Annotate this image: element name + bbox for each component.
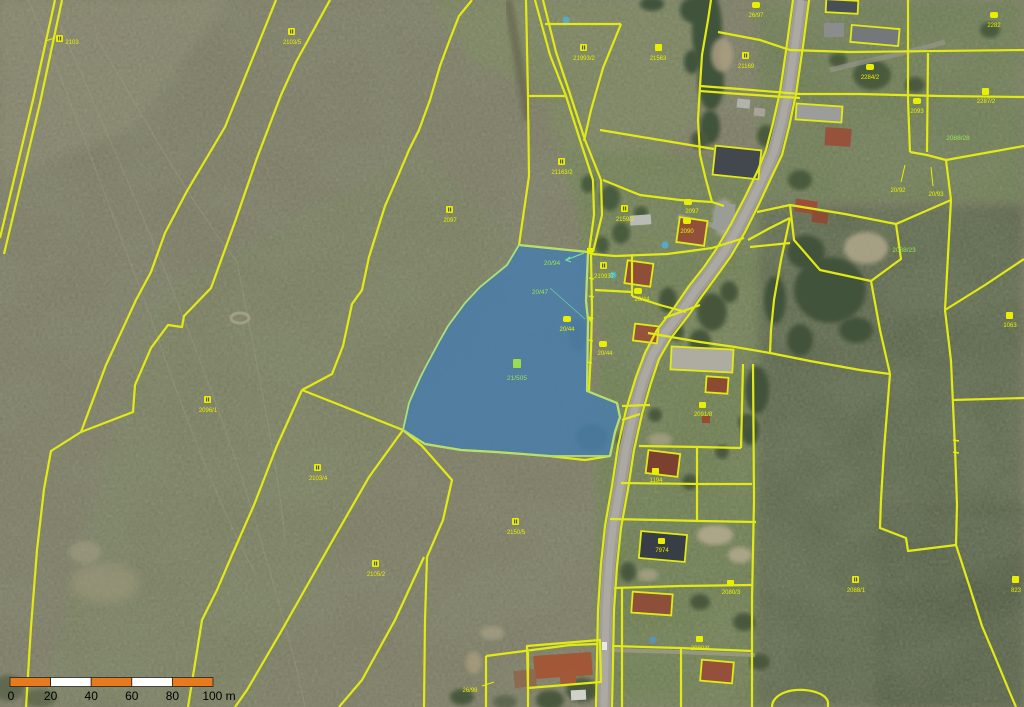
svg-text:2096/1: 2096/1 [199,408,218,414]
svg-text:2159/2: 2159/2 [616,217,635,223]
svg-text:7974: 7974 [655,548,669,554]
svg-text:60: 60 [125,689,139,703]
svg-text:26/98: 26/98 [462,688,478,694]
svg-text:2150/5: 2150/5 [507,530,526,536]
svg-text:2088/1: 2088/1 [847,588,866,594]
svg-text:2103: 2103 [65,40,79,46]
svg-text:2105/2: 2105/2 [367,572,386,578]
svg-text:2088/23: 2088/23 [892,247,916,254]
svg-text:21563: 21563 [650,56,667,62]
svg-text:2080/3: 2080/3 [722,590,741,596]
svg-text:20/44: 20/44 [559,327,575,333]
svg-text:20/94: 20/94 [544,260,561,267]
svg-text:40: 40 [85,689,99,703]
svg-text:80: 80 [166,689,180,703]
svg-text:2093: 2093 [910,109,924,115]
svg-text:2103/4: 2103/4 [309,476,328,482]
svg-text:2287/2: 2287/2 [977,99,996,105]
svg-text:2097: 2097 [685,209,699,215]
svg-text:0: 0 [8,689,15,703]
svg-text:21/505: 21/505 [507,375,527,382]
svg-text:20/44: 20/44 [634,297,650,303]
svg-text:20/93: 20/93 [928,192,944,198]
svg-text:21169: 21169 [738,64,755,70]
svg-text:2091/8: 2091/8 [694,412,713,418]
svg-text:2097: 2097 [443,218,457,224]
svg-text:2088/28: 2088/28 [946,135,970,142]
svg-text:2080/8: 2080/8 [691,646,710,652]
svg-text:1194: 1194 [650,478,664,484]
svg-text:21163/2: 21163/2 [551,170,573,176]
svg-text:2282: 2282 [987,23,1001,29]
svg-text:20/44: 20/44 [597,351,613,357]
svg-text:26/97: 26/97 [748,13,764,19]
svg-text:2284/2: 2284/2 [861,75,880,81]
svg-text:2103/5: 2103/5 [283,40,302,46]
svg-text:100 m: 100 m [202,689,235,703]
svg-text:20/47: 20/47 [532,289,549,296]
svg-text:210937: 210937 [594,274,615,280]
svg-text:20/92: 20/92 [890,188,906,194]
svg-text:20: 20 [44,689,58,703]
svg-text:2090: 2090 [680,229,694,235]
svg-text:1063: 1063 [1003,323,1017,329]
svg-text:21993/2: 21993/2 [573,56,595,62]
svg-text:823: 823 [1011,588,1022,594]
